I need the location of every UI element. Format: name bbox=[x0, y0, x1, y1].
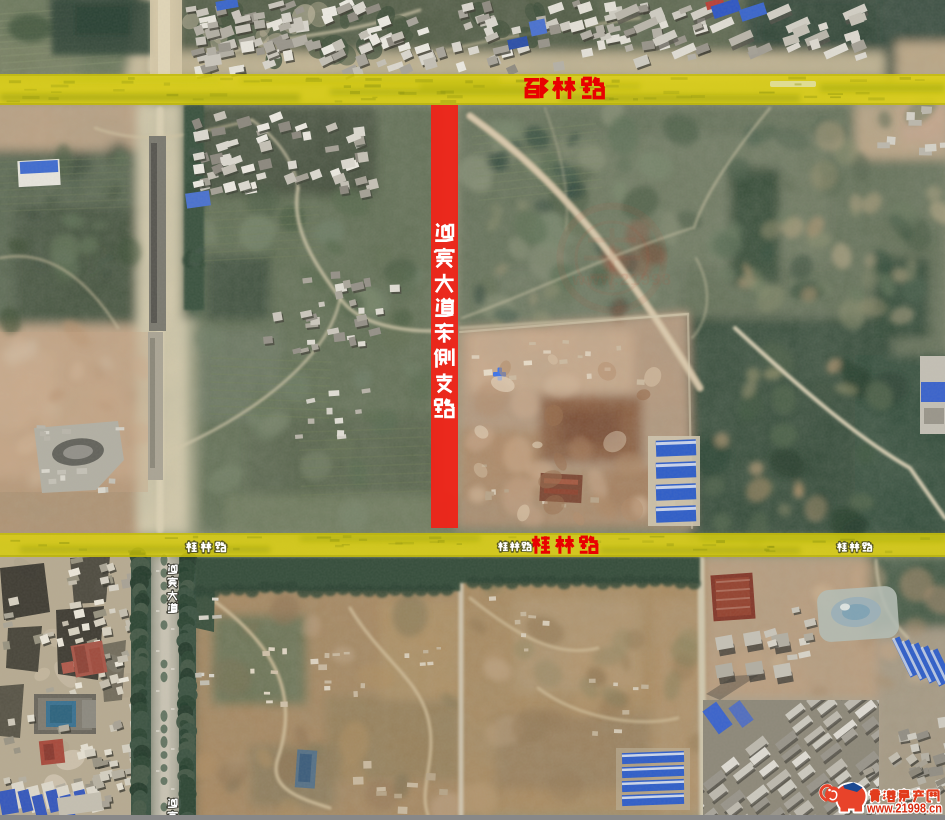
svg-text:www.21998.cn: www.21998.cn bbox=[866, 802, 942, 816]
